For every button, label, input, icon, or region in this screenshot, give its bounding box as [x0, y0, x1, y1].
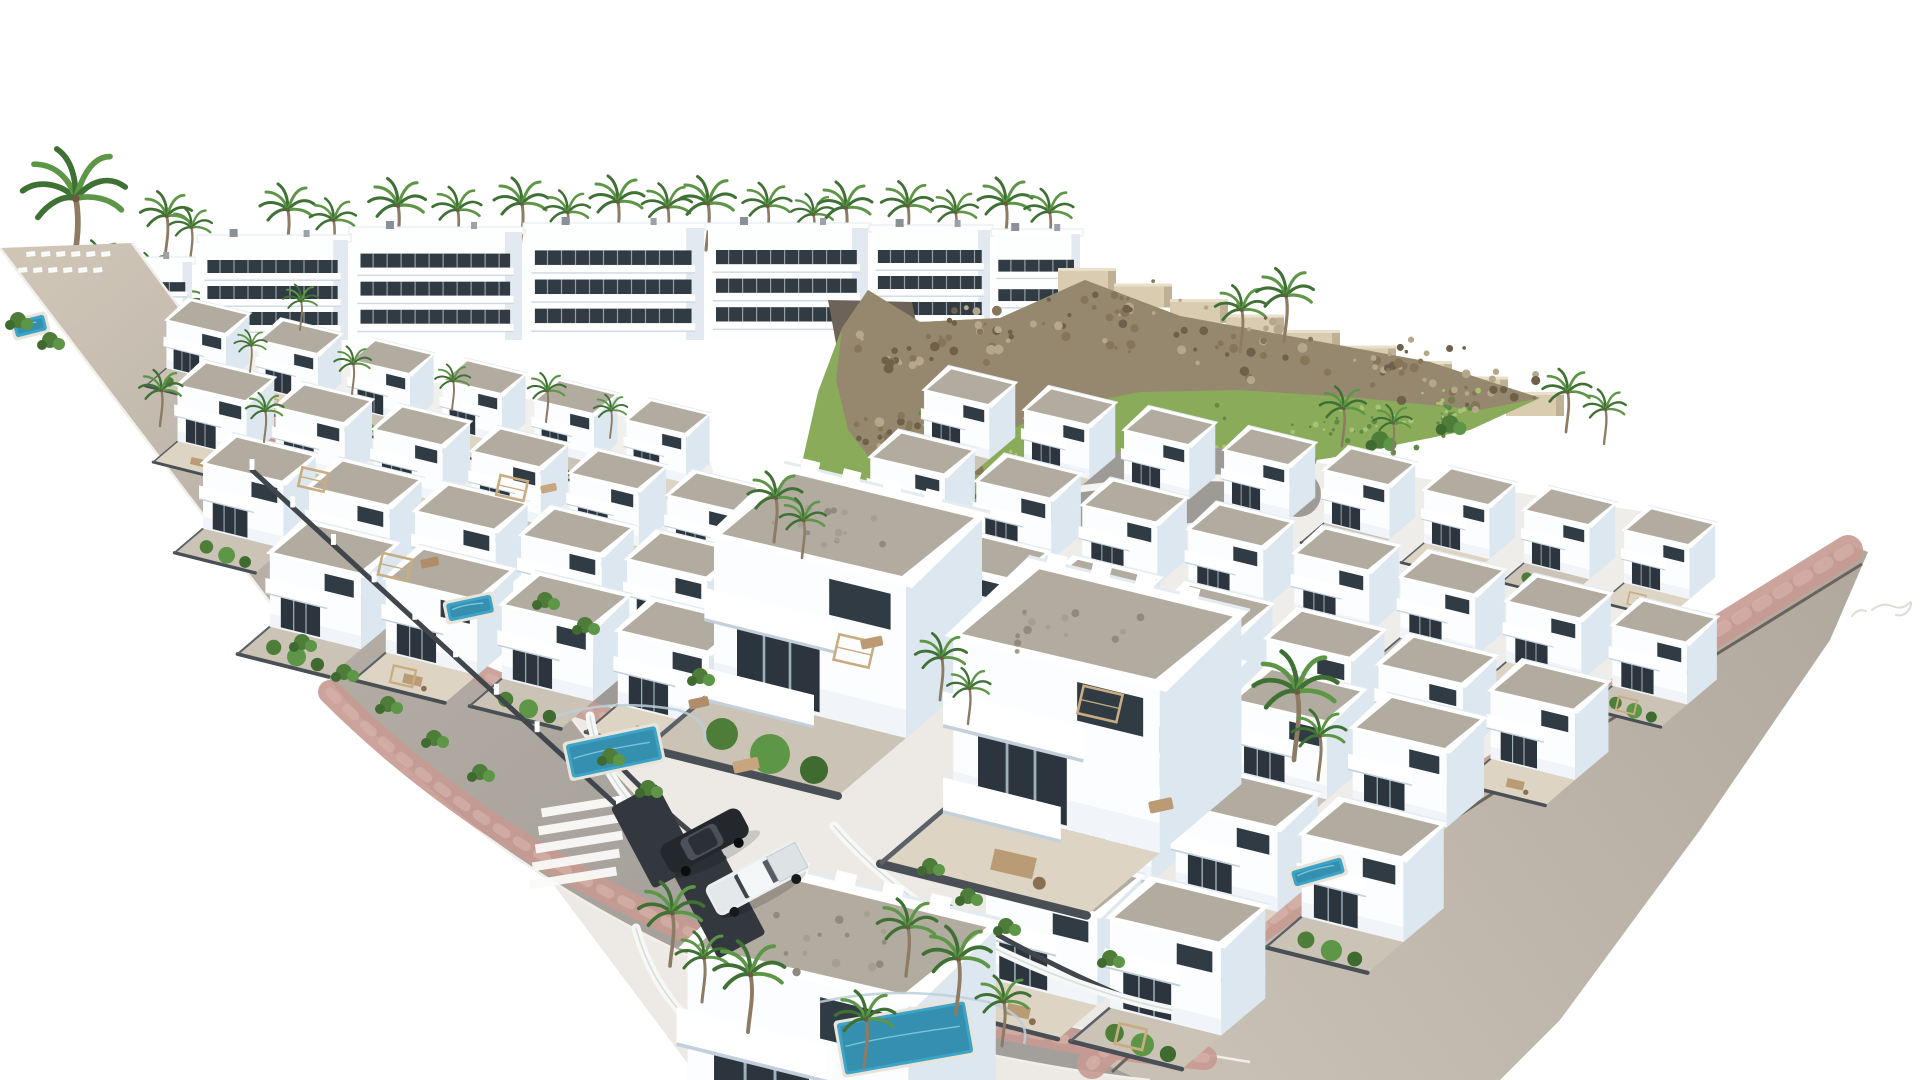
townhouse-block: [349, 221, 525, 340]
villa-development-render: [0, 0, 1920, 1080]
render-world: [0, 149, 1911, 1080]
bush: [37, 332, 65, 350]
palm-tree: [1543, 369, 1592, 432]
render-stage: [0, 0, 1920, 1080]
bush: [5, 312, 33, 330]
townhouse-block: [523, 217, 707, 340]
palm-tree: [140, 192, 191, 259]
faint-sketch-mark: [1852, 602, 1911, 616]
